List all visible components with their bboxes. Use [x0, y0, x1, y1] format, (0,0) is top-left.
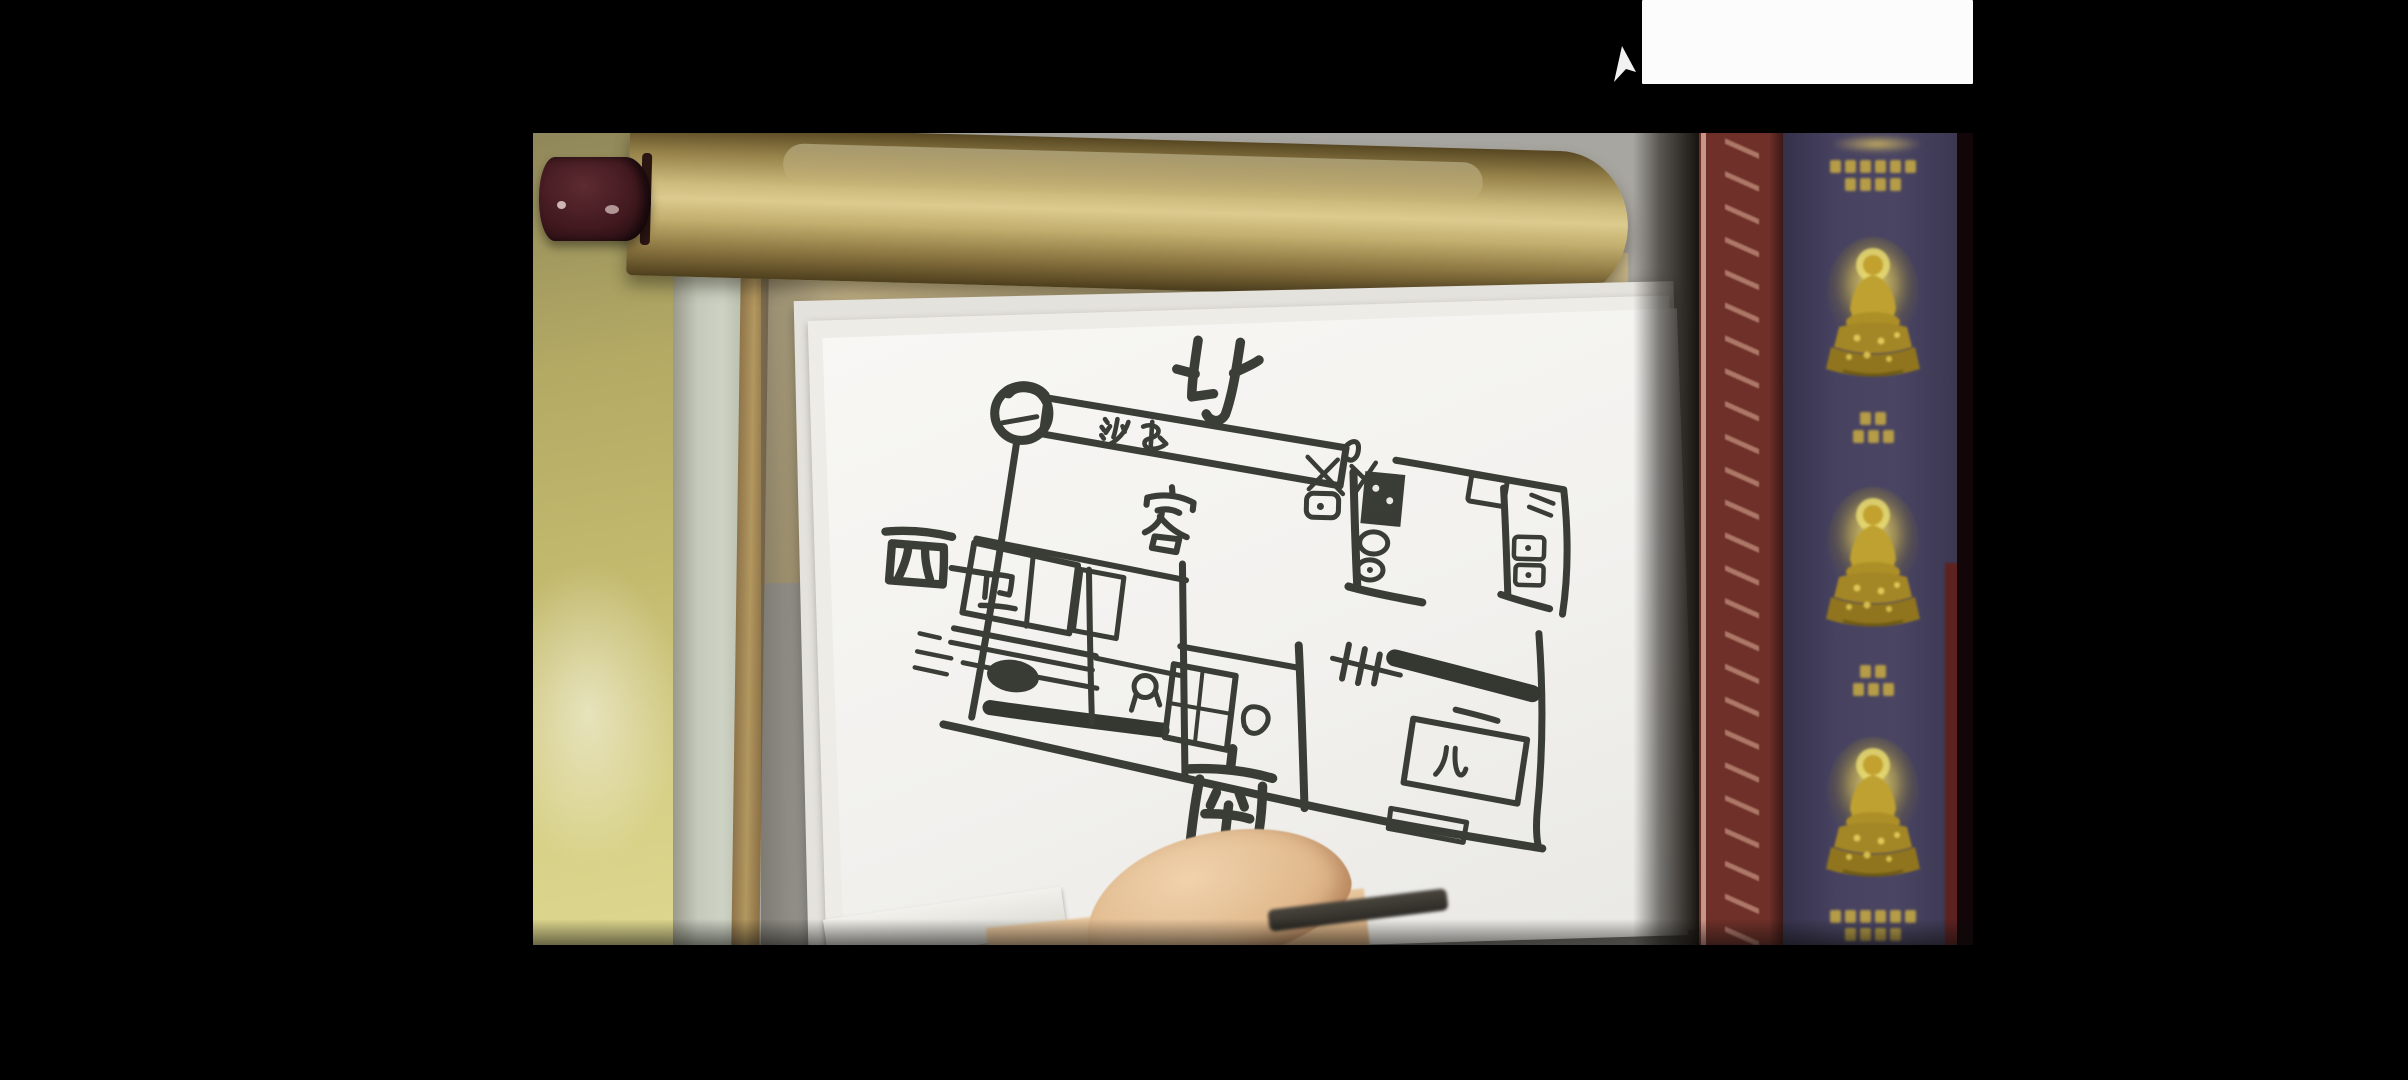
gold-text-block — [1783, 412, 1963, 443]
corner-circle-inked — [1008, 386, 1044, 396]
cap-highlight-dot — [605, 205, 619, 214]
divider-wall-1 — [1085, 570, 1096, 723]
bathroom-label — [980, 573, 1018, 609]
north-label — [1170, 334, 1261, 426]
buddha-figure — [1797, 723, 1949, 903]
banner-top-gold — [1831, 135, 1923, 153]
west-label — [882, 529, 953, 585]
kitchen-fixture — [1359, 532, 1388, 555]
banner-shadow-gap — [1633, 133, 1699, 945]
hash-ticks — [1342, 645, 1380, 684]
corner-circle-mark — [1002, 416, 1036, 424]
banner-ornament-pattern — [1725, 133, 1759, 945]
bed-square-cross — [1170, 668, 1232, 745]
door-arc — [1243, 707, 1268, 734]
left-ticks — [915, 633, 952, 674]
buddha-figure — [1797, 223, 1949, 403]
kids-room-box — [1403, 718, 1528, 803]
bed-dark-blob — [985, 656, 1041, 695]
closet-scribble — [1529, 495, 1554, 516]
gold-text-block — [1783, 160, 1963, 191]
kids-room-label — [1436, 747, 1468, 777]
centerroom-top — [1180, 646, 1297, 667]
buddha-figure — [1797, 473, 1949, 653]
buddha-banner — [1783, 133, 1963, 945]
room2-line — [1095, 658, 1180, 675]
kids-bed-bar — [1394, 658, 1533, 694]
door-knob-dot — [1317, 503, 1324, 510]
white-cursor-mark — [1602, 42, 1648, 84]
closet-bottom — [1500, 594, 1549, 608]
living-room-label — [1142, 485, 1195, 554]
cap-highlight-dot — [557, 201, 566, 209]
thick-dark-stroke — [990, 708, 1163, 731]
kitchen-counter — [1348, 586, 1423, 602]
screenshot-canvas — [0, 0, 2408, 1080]
banner-pink-edge — [1701, 133, 1706, 945]
video-frame — [533, 133, 1973, 945]
wall-right-line — [1533, 634, 1544, 847]
white-overlay-box — [1642, 0, 1973, 84]
gold-text-block — [1783, 665, 1963, 696]
divider-wall-3 — [1294, 645, 1308, 808]
sofa-outline — [1041, 398, 1347, 486]
bathroom-divider — [1026, 556, 1033, 626]
bathroom-door — [1073, 569, 1124, 638]
banner-red-border — [1699, 133, 1783, 945]
appliance-dark-rect — [1360, 471, 1405, 527]
banner-right-dark-edge — [1957, 133, 1973, 945]
frame-bottom-shade — [533, 919, 1973, 945]
scroll-end-cap — [539, 157, 651, 241]
